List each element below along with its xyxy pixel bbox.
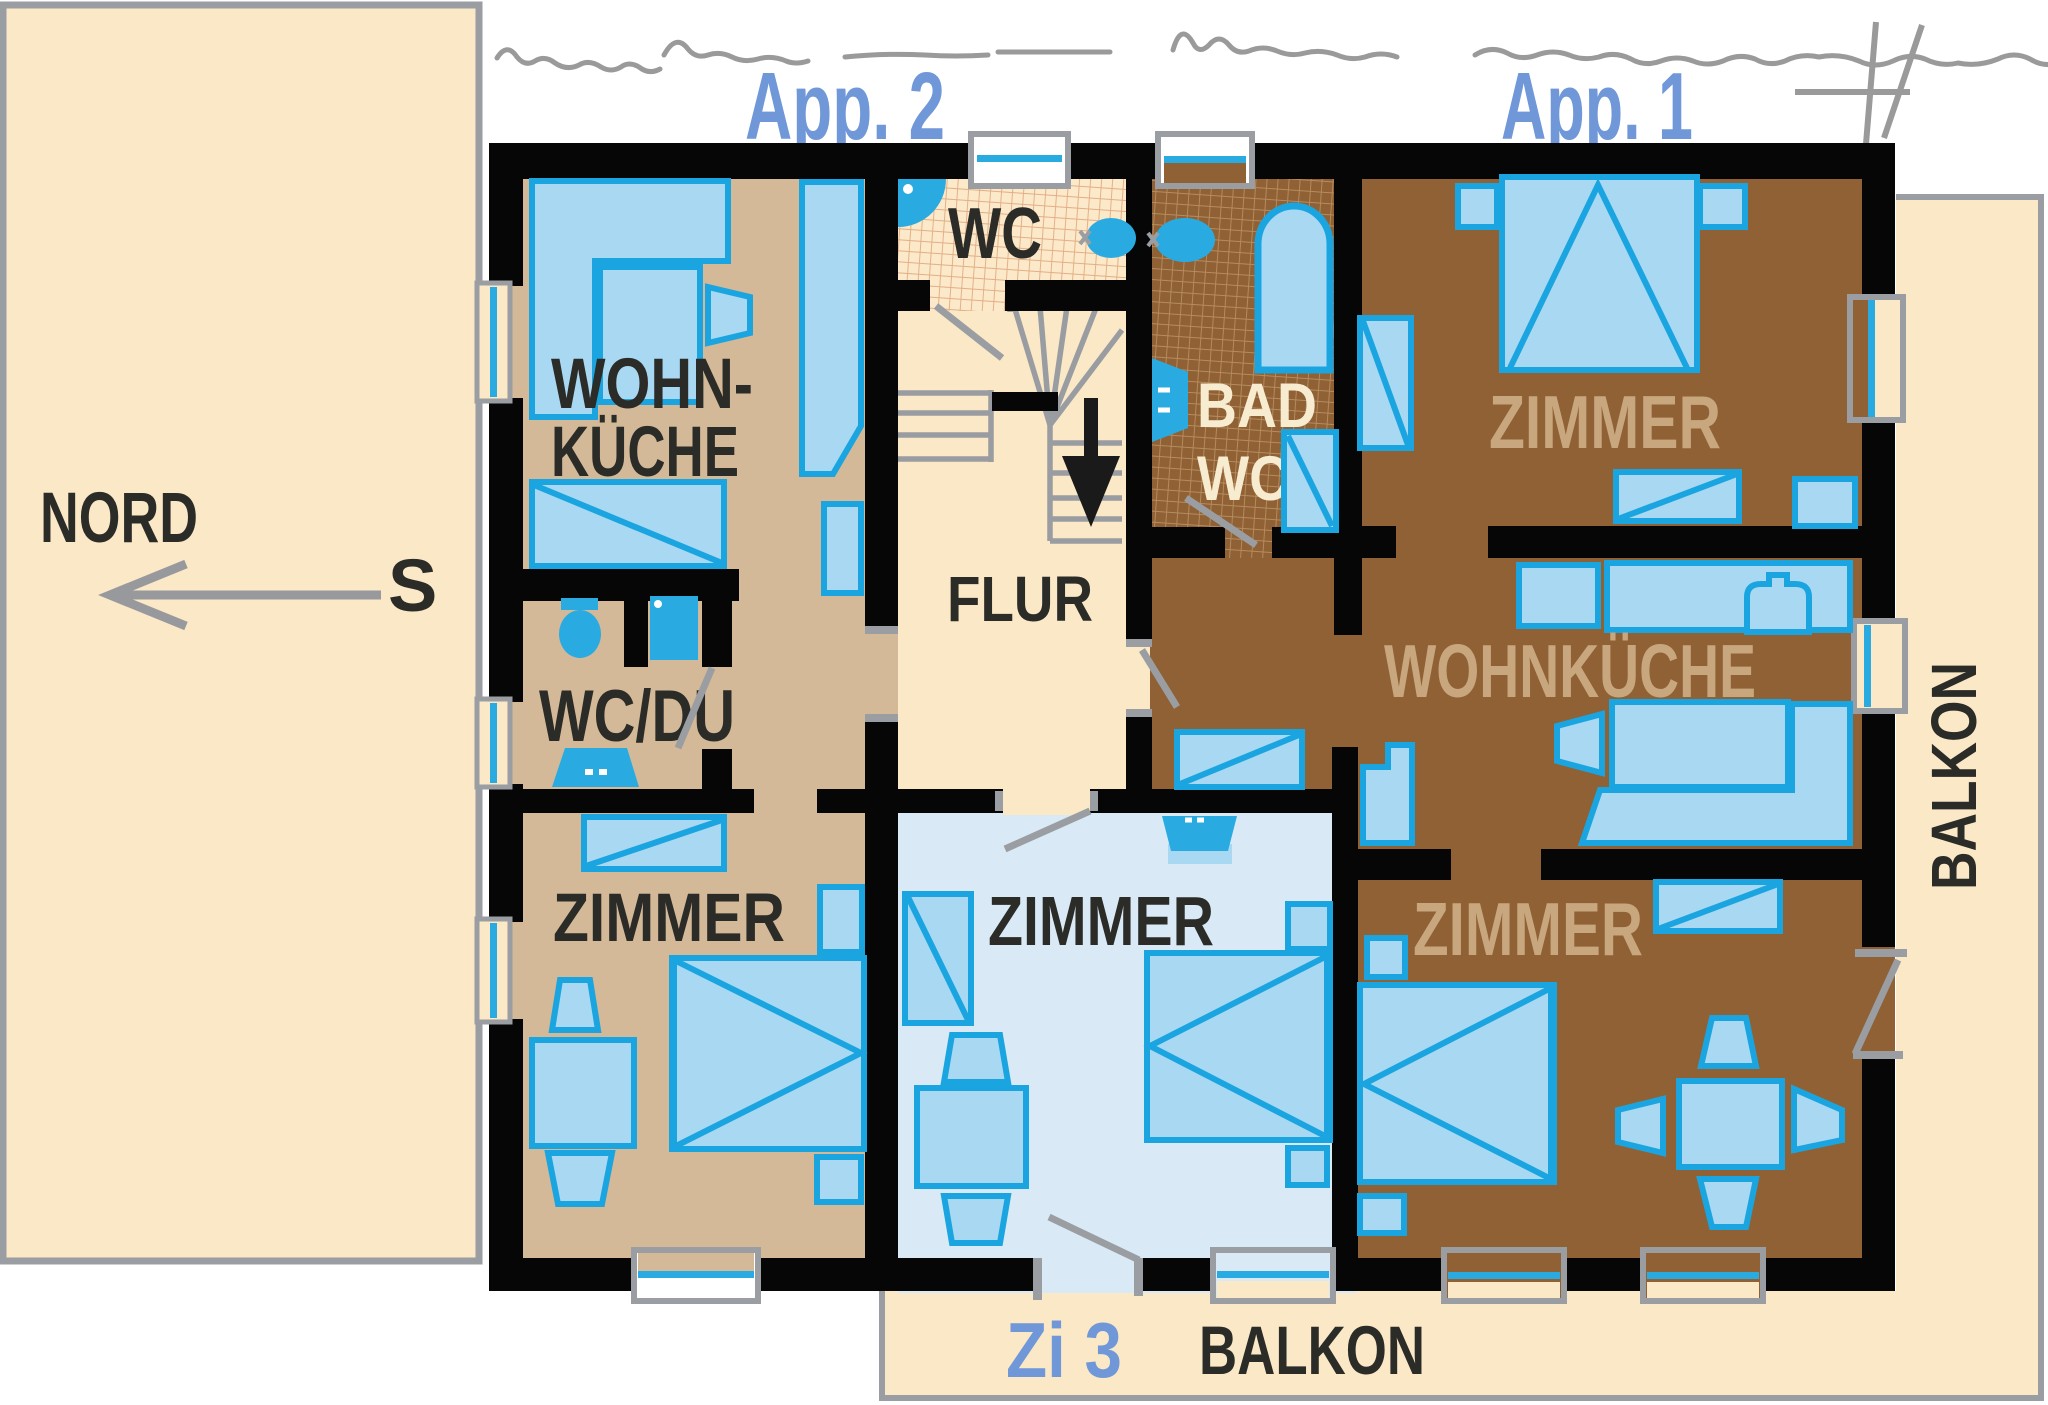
svg-text:WC: WC (948, 194, 1042, 274)
svg-text:ZIMMER: ZIMMER (1413, 887, 1643, 971)
svg-text:BALKON: BALKON (1199, 1312, 1425, 1389)
svg-text:FLUR: FLUR (947, 563, 1093, 635)
svg-text:ZIMMER: ZIMMER (553, 879, 785, 956)
svg-text:ZIMMER: ZIMMER (988, 882, 1214, 960)
svg-text:ZIMMER: ZIMMER (1489, 380, 1721, 464)
svg-text:S: S (388, 544, 437, 627)
svg-text:NORD: NORD (40, 479, 198, 558)
svg-text:KÜCHE: KÜCHE (551, 413, 739, 492)
svg-text:Zi 3: Zi 3 (1006, 1306, 1122, 1394)
svg-text:BALKON: BALKON (1918, 662, 1990, 890)
svg-text:WC: WC (1197, 444, 1289, 514)
